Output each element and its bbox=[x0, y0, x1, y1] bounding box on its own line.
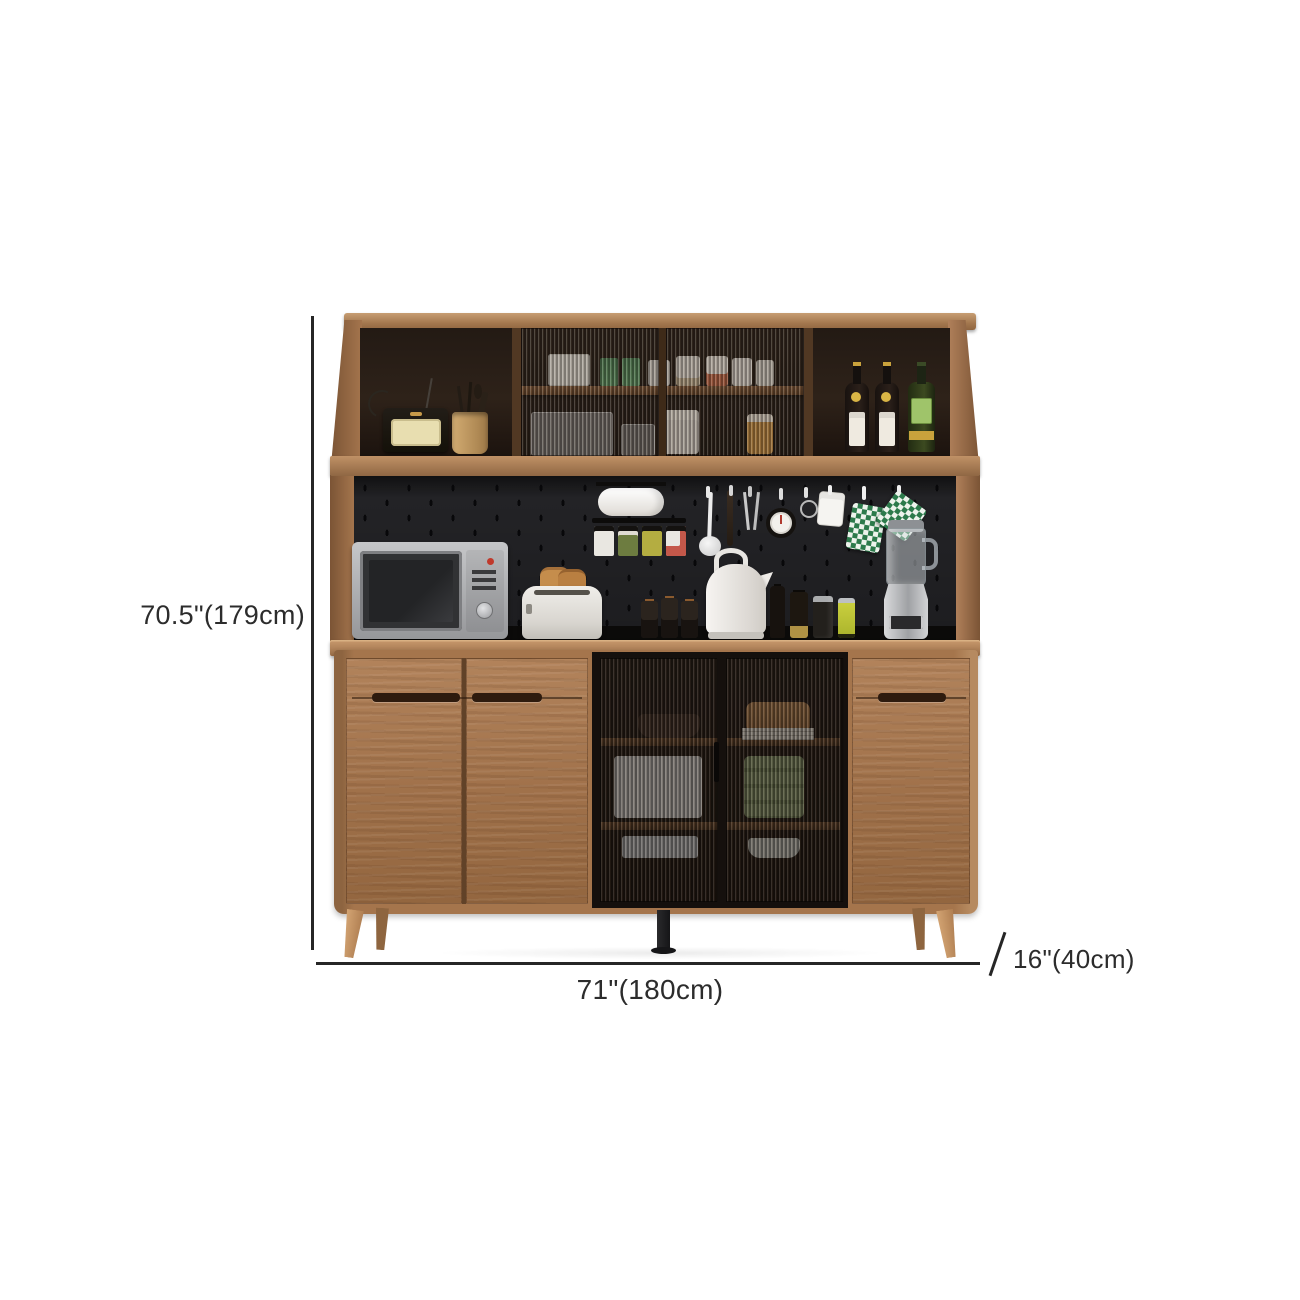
hutch-bottom-shelf bbox=[330, 456, 980, 476]
wine-bottle-1-label bbox=[849, 412, 865, 446]
mid-right-side-panel bbox=[956, 476, 980, 642]
spice-rack-jar-3 bbox=[642, 526, 662, 556]
electric-kettle bbox=[706, 564, 766, 634]
hutch-left-side-panel bbox=[330, 320, 362, 476]
peg-hook-2 bbox=[729, 485, 733, 496]
spice-rack-jar-1 bbox=[594, 526, 614, 556]
oil-bottle-2 bbox=[790, 592, 808, 638]
wine-bottle-1-neck bbox=[853, 366, 861, 384]
depth-dimension-tick bbox=[989, 932, 1007, 976]
peg-hook-4 bbox=[779, 488, 783, 500]
counter-spice-1 bbox=[641, 601, 658, 638]
peg-hook-1 bbox=[706, 486, 710, 498]
peg-hook-6 bbox=[828, 485, 832, 495]
depth-dimension-label: 16"(40cm) bbox=[1013, 944, 1135, 975]
peg-hook-3 bbox=[748, 486, 752, 497]
hutch-glass-door-right bbox=[666, 328, 804, 456]
lower-glass-door-right bbox=[726, 658, 844, 902]
wine-bottle-2-foil bbox=[881, 392, 891, 402]
utensil-cup bbox=[452, 412, 488, 454]
counter-spice-3 bbox=[681, 601, 698, 638]
spatula bbox=[727, 490, 733, 546]
counter-spice-2 bbox=[661, 598, 678, 638]
door-handle-groove-2 bbox=[472, 693, 542, 702]
hanging-plug-box bbox=[817, 491, 846, 527]
toaster-slot bbox=[534, 590, 590, 595]
width-dimension-line bbox=[316, 962, 980, 965]
wine-bottle-2-neck bbox=[883, 366, 891, 384]
toaster-lever bbox=[526, 604, 532, 614]
blender-jar bbox=[886, 528, 926, 586]
timer-hand bbox=[780, 515, 782, 524]
microwave-window bbox=[369, 560, 453, 622]
width-dimension-label: 71"(180cm) bbox=[548, 974, 752, 1006]
radio-face bbox=[391, 419, 441, 446]
door-handle-groove-3 bbox=[878, 693, 946, 702]
radio-button bbox=[410, 412, 422, 416]
hutch-glass-door-left bbox=[521, 328, 659, 456]
door-seam-left bbox=[462, 658, 466, 904]
height-dimension-label: 70.5"(179cm) bbox=[120, 600, 305, 631]
peg-hook-5 bbox=[804, 487, 808, 498]
blender-base bbox=[884, 584, 928, 639]
oil-bottle-1 bbox=[770, 586, 785, 638]
leg-center-base bbox=[651, 947, 676, 954]
lower-glass-center-stile bbox=[718, 658, 726, 902]
blender-control-band bbox=[889, 616, 923, 629]
door-handle-groove-1 bbox=[372, 693, 460, 702]
liquor-bottle-band bbox=[909, 431, 934, 440]
microwave-power-light bbox=[487, 558, 494, 565]
beverage-can-yellow bbox=[838, 598, 855, 638]
lower-glass-handle bbox=[714, 742, 719, 782]
paper-towel-bracket bbox=[596, 482, 666, 486]
mid-left-side-panel bbox=[330, 476, 354, 642]
microwave-buttons bbox=[472, 570, 496, 596]
product-dimension-image: 70.5"(179cm) 71"(180cm) 16"(40cm) bbox=[0, 0, 1300, 1300]
hutch-right-side-panel bbox=[948, 320, 980, 476]
hutch-glass-stile-right bbox=[804, 328, 813, 456]
wine-bottle-1-foil bbox=[851, 392, 861, 402]
liquor-bottle-neck bbox=[917, 366, 926, 384]
hanging-ring bbox=[800, 500, 818, 518]
paper-towel-roll bbox=[598, 488, 664, 516]
peg-hook-7 bbox=[862, 486, 866, 500]
height-dimension-line bbox=[311, 316, 314, 950]
lower-glass-door-left bbox=[600, 658, 718, 902]
hutch-glass-stile-center bbox=[659, 328, 666, 456]
kettle-base bbox=[708, 632, 764, 639]
wine-bottle-2-label bbox=[879, 412, 895, 446]
microwave-dial bbox=[476, 602, 493, 619]
hutch-glass-stile-left bbox=[512, 328, 521, 456]
leg-center bbox=[657, 910, 670, 950]
beverage-can-dark bbox=[813, 596, 833, 638]
spice-rack-jar-4 bbox=[666, 526, 686, 556]
spice-rack-rail bbox=[592, 518, 686, 523]
liquor-bottle-label bbox=[911, 398, 932, 424]
spice-rack-jar-2 bbox=[618, 526, 638, 556]
